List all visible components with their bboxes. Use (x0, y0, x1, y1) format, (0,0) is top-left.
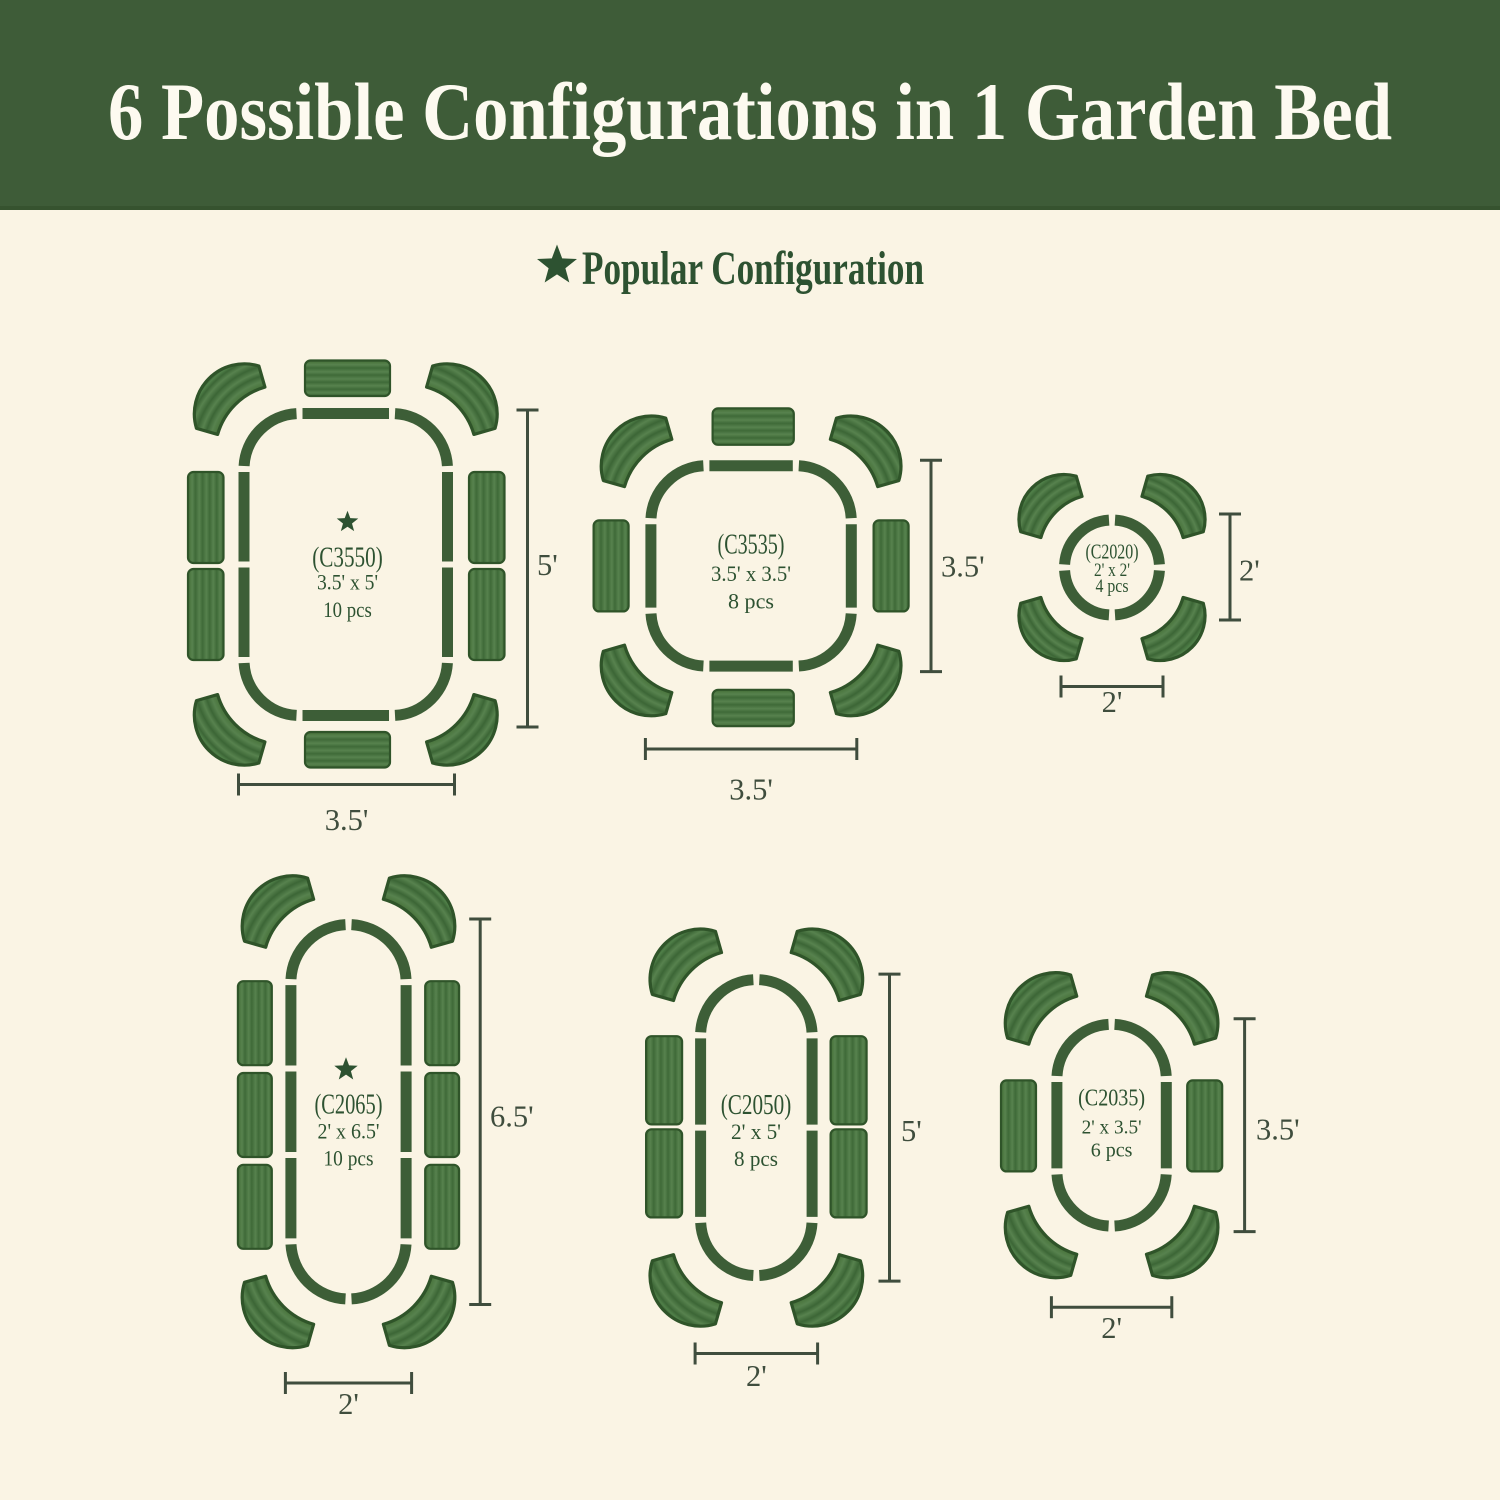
svg-text:3.5': 3.5' (1256, 1112, 1300, 1146)
svg-text:10 pcs: 10 pcs (324, 1146, 374, 1171)
svg-text:3.5': 3.5' (941, 550, 985, 584)
svg-text:(C2035): (C2035) (1078, 1086, 1145, 1112)
svg-text:8 pcs: 8 pcs (734, 1146, 778, 1171)
svg-text:3.5' x 5': 3.5' x 5' (317, 570, 378, 595)
svg-text:6 Possible Configurations in 1: 6 Possible Configurations in 1 Garden Be… (108, 66, 1392, 157)
svg-text:3.5': 3.5' (729, 773, 773, 807)
svg-text:2': 2' (1239, 554, 1260, 588)
svg-text:6 pcs: 6 pcs (1091, 1140, 1133, 1162)
svg-text:(C2065): (C2065) (315, 1090, 383, 1121)
svg-text:2' x 5': 2' x 5' (731, 1119, 781, 1144)
svg-text:3.5' x 3.5': 3.5' x 3.5' (711, 561, 791, 586)
svg-text:Popular Configuration: Popular Configuration (582, 242, 924, 295)
svg-text:2' x 6.5': 2' x 6.5' (318, 1119, 380, 1144)
svg-text:8 pcs: 8 pcs (728, 589, 774, 614)
svg-text:4 pcs: 4 pcs (1096, 576, 1129, 597)
svg-text:2': 2' (1101, 1311, 1122, 1345)
svg-text:(C2050): (C2050) (721, 1090, 792, 1121)
svg-text:2': 2' (338, 1387, 359, 1421)
svg-text:5': 5' (537, 548, 558, 582)
svg-text:2': 2' (1102, 685, 1123, 719)
svg-text:2' x 3.5': 2' x 3.5' (1082, 1117, 1142, 1139)
svg-text:10 pcs: 10 pcs (323, 597, 372, 622)
svg-text:6.5': 6.5' (490, 1099, 534, 1133)
svg-text:2': 2' (746, 1359, 767, 1393)
svg-text:(C3535): (C3535) (718, 530, 785, 561)
svg-text:3.5': 3.5' (325, 803, 369, 837)
svg-text:5': 5' (901, 1114, 922, 1148)
